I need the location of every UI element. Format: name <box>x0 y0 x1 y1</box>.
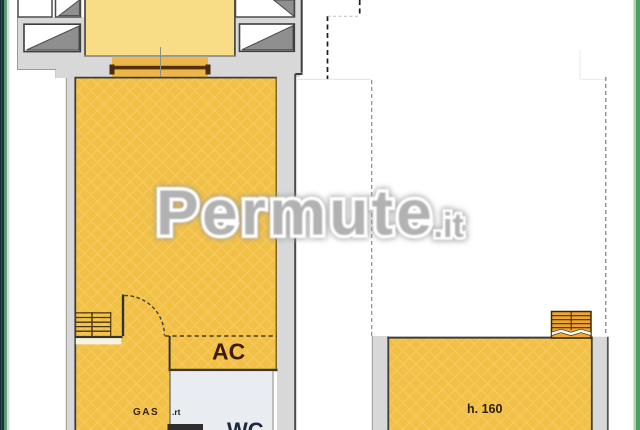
svg-text:h. 160: h. 160 <box>467 402 502 416</box>
svg-text:Permute: Permute <box>156 177 435 249</box>
svg-text:GAS: GAS <box>133 407 159 418</box>
svg-text:WC: WC <box>227 418 264 430</box>
svg-text:AC: AC <box>212 339 245 365</box>
svg-text:.it: .it <box>434 207 464 245</box>
svg-text:.rt: .rt <box>172 407 181 417</box>
